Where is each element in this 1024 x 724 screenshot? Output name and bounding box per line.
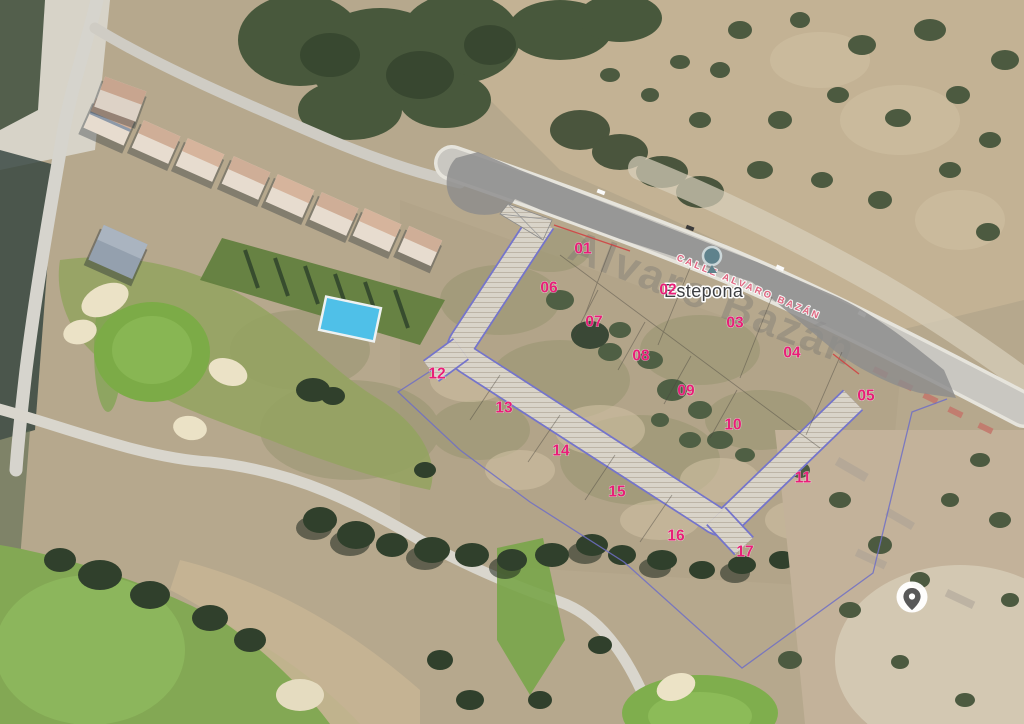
plot-marker-09: 09	[677, 383, 695, 400]
plot-marker-08: 08	[632, 348, 650, 365]
plot-marker-11: 11	[795, 470, 812, 487]
plot-marker-05: 05	[857, 388, 875, 405]
plot-marker-12: 12	[428, 366, 445, 383]
plot-marker-03: 03	[726, 315, 744, 332]
plot-marker-16: 16	[667, 528, 685, 545]
site-plan-map[interactable]: Alvaro Bazán CALLE ALVARO BAZÁN Estepona	[0, 0, 1024, 724]
location-pin-icon[interactable]	[897, 582, 928, 613]
plot-marker-14: 14	[552, 443, 570, 460]
plot-marker-04: 04	[783, 345, 801, 362]
plot-marker-02: 02	[659, 282, 676, 299]
plot-marker-06: 06	[540, 280, 558, 297]
plot-marker-01: 01	[574, 241, 592, 258]
plot-marker-13: 13	[495, 400, 513, 417]
plot-marker-15: 15	[608, 484, 626, 501]
plot-marker-10: 10	[724, 417, 741, 434]
plot-marker-07: 07	[585, 314, 602, 331]
plot-marker-17: 17	[736, 544, 753, 561]
